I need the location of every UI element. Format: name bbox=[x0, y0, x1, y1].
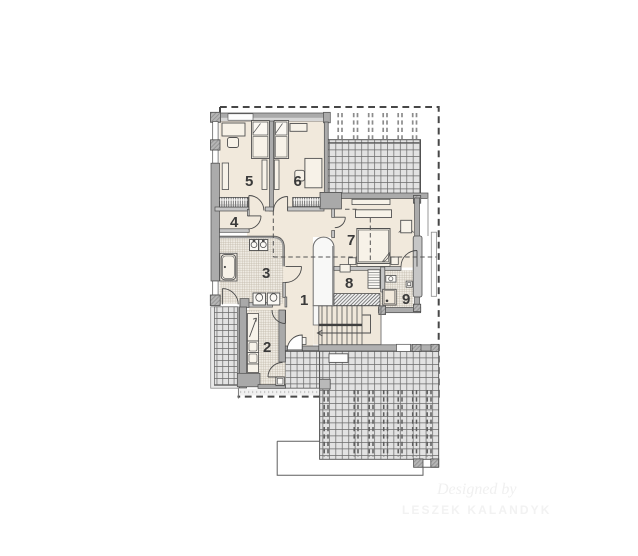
svg-text:4: 4 bbox=[230, 214, 239, 231]
svg-text:9: 9 bbox=[402, 291, 410, 308]
svg-text:3: 3 bbox=[262, 265, 270, 282]
svg-text:6: 6 bbox=[294, 173, 302, 190]
svg-text:1: 1 bbox=[300, 292, 308, 309]
svg-text:8: 8 bbox=[345, 275, 353, 292]
svg-text:Designed by: Designed by bbox=[436, 481, 517, 498]
svg-text:5: 5 bbox=[245, 173, 253, 190]
svg-text:LESZEK KALANDYK: LESZEK KALANDYK bbox=[402, 503, 552, 517]
svg-text:2: 2 bbox=[263, 339, 271, 356]
svg-text:7: 7 bbox=[347, 232, 355, 249]
